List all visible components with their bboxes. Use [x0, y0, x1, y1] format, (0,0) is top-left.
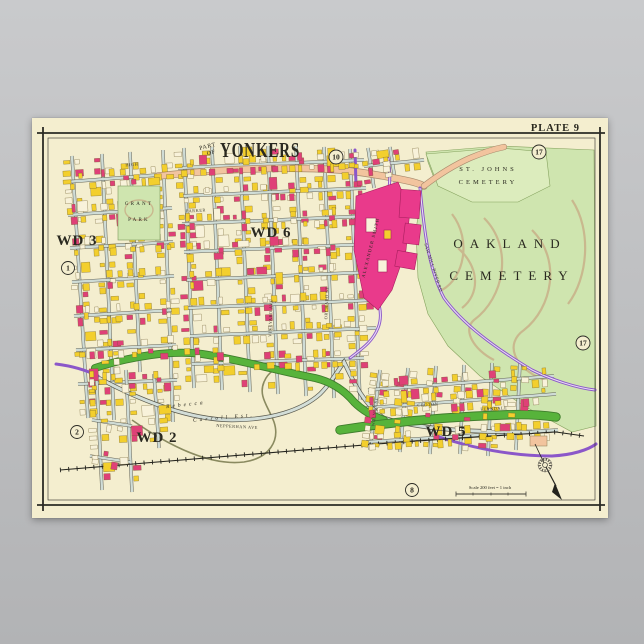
poster: PLATE 9 PART OF YONKERS WD 3 WD 6 WD 2 W… [32, 118, 608, 518]
ward-label-wd3: WD 3 [56, 233, 97, 249]
grant-park-area [118, 186, 160, 240]
ward-label-wd2: WD 2 [136, 430, 177, 446]
scale-text: Scale 200 feet = 1 inch [469, 485, 512, 490]
ward-label-wd6: WD 6 [250, 225, 291, 241]
circle-2: 2 [75, 428, 79, 437]
circle-1: 1 [66, 264, 70, 273]
yonkers-map: PLATE 9 PART OF YONKERS WD 3 WD 6 WD 2 W… [32, 118, 608, 518]
st-johns-label: ST. JOHNS [459, 166, 517, 173]
grant-park-label: GRANT [125, 202, 153, 207]
oakland-label: OAKLAND [453, 236, 566, 251]
oakland-label-2: CEMETERY [449, 268, 574, 283]
circle-10: 10 [332, 153, 340, 162]
product-photo-background: PLATE 9 PART OF YONKERS WD 3 WD 6 WD 2 W… [0, 0, 644, 644]
circle-8: 8 [410, 486, 414, 495]
st-johns-label-2: CEMETERY [459, 179, 518, 186]
street-label-parker: PARKER [186, 207, 206, 213]
circle-17-top: 17 [535, 148, 543, 157]
ward-label-wd5: WD 5 [425, 424, 466, 440]
street-label-high: HIGH [125, 162, 139, 168]
grant-park-label-2: PARK [128, 218, 150, 223]
plate-label: PLATE 9 [531, 123, 580, 134]
circle-17-right: 17 [579, 339, 587, 348]
map-title: YONKERS [220, 138, 300, 162]
